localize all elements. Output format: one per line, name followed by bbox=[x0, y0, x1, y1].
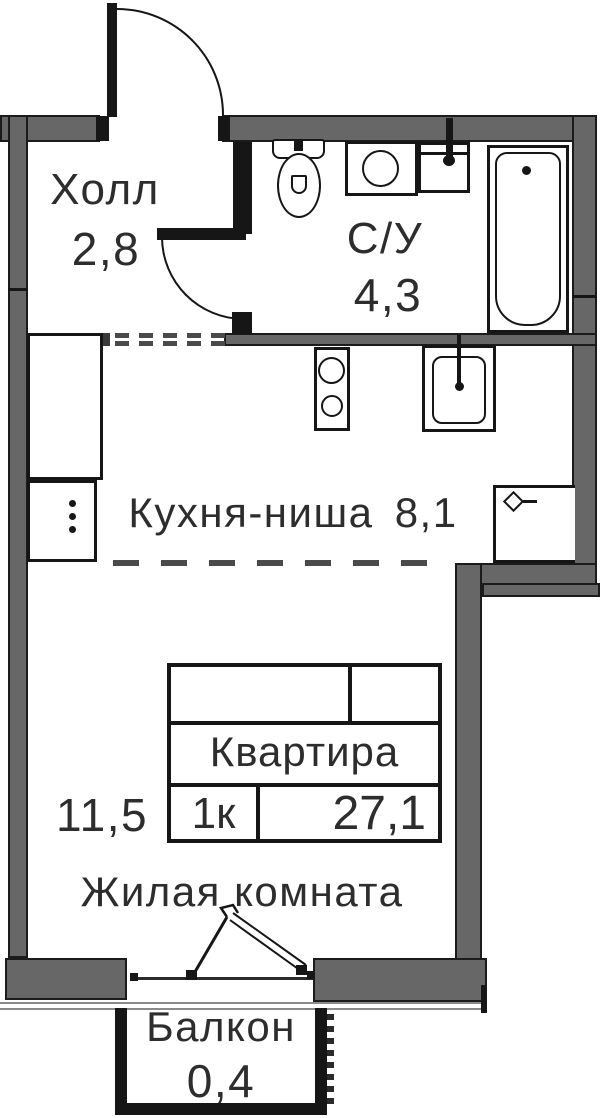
hall-label: Холл bbox=[50, 168, 160, 212]
balcony-hatch bbox=[327, 1014, 334, 1104]
balcony-label: Балкон bbox=[146, 1006, 296, 1048]
window-end-cap bbox=[481, 985, 487, 1013]
hall-kitchen-zone-line-1 bbox=[115, 333, 227, 338]
stove-burner-1 bbox=[318, 357, 345, 384]
apartment-title: Квартира bbox=[171, 731, 438, 773]
kitchen-sink-tap-dot bbox=[455, 382, 464, 391]
living-right-wall bbox=[455, 563, 482, 985]
balcony-wall-right bbox=[315, 1008, 327, 1115]
bathroom-sink-rim bbox=[421, 152, 467, 155]
refrigerator-dot-1 bbox=[69, 500, 76, 507]
living-area: 11,5 bbox=[56, 792, 148, 838]
entrance-door-jamb-left bbox=[96, 116, 109, 141]
stove-burner-2 bbox=[321, 395, 343, 417]
right-wall-joint bbox=[572, 295, 597, 298]
kitchen-living-zone-line bbox=[113, 560, 431, 566]
left-wall bbox=[8, 115, 28, 958]
bathroom-sink-icon bbox=[418, 142, 470, 193]
balcony-wall-left bbox=[115, 1008, 127, 1115]
bathroom-kitchen-wall bbox=[224, 333, 597, 346]
kitchen-sink-tap bbox=[457, 335, 461, 385]
vent-shaft-tail bbox=[523, 500, 537, 503]
balcony-threshold bbox=[133, 977, 313, 980]
info-table-row-line-1 bbox=[171, 721, 438, 725]
kitchen-area: 8,1 bbox=[395, 489, 458, 536]
bathroom-sink-tap bbox=[446, 118, 453, 160]
bathroom-area: 4,3 bbox=[354, 272, 422, 318]
toilet-bowl-inner bbox=[291, 175, 307, 194]
wardrobe-icon bbox=[27, 333, 103, 480]
living-label: Жилая комната bbox=[81, 871, 404, 913]
bathroom-sink-tap-dot bbox=[443, 155, 455, 166]
kitchen-name: Кухня-ниша bbox=[128, 489, 373, 536]
refrigerator-dot-2 bbox=[69, 513, 76, 520]
balcony-area: 0,4 bbox=[187, 1058, 255, 1104]
vent-shaft-box bbox=[493, 485, 575, 563]
bathtub-drain bbox=[522, 166, 531, 175]
entrance-door-leaf bbox=[107, 3, 117, 117]
toilet-flush-button bbox=[294, 139, 303, 151]
hall-area: 2,8 bbox=[72, 226, 140, 272]
top-wall-right bbox=[222, 115, 597, 142]
bathroom-label: С/У bbox=[347, 217, 423, 261]
bottom-wall-right bbox=[313, 958, 487, 1002]
bottom-wall-left bbox=[5, 958, 127, 1000]
hall-bathroom-partition bbox=[233, 142, 252, 234]
left-wall-joint bbox=[8, 288, 28, 291]
se-outer-band bbox=[482, 583, 600, 597]
rooms-count: 1к bbox=[171, 792, 256, 836]
right-wall bbox=[572, 115, 597, 590]
bathtub-inner bbox=[495, 152, 561, 326]
total-area: 27,1 bbox=[260, 790, 432, 838]
entrance-door-swing-arc bbox=[117, 8, 224, 115]
bathroom-door-swing-arc bbox=[161, 237, 244, 320]
entrance-door-jamb-right bbox=[218, 116, 230, 141]
floor-plan: Квартира 1к 27,1 Холл 2,8 С/У 4,3 Кухня-… bbox=[0, 0, 600, 1118]
info-table-col-divider bbox=[348, 667, 352, 723]
kitchen-label: Кухня-ниша 8,1 bbox=[128, 492, 457, 534]
hall-kitchen-zone-line-2 bbox=[115, 341, 227, 346]
refrigerator-dot-3 bbox=[69, 526, 76, 533]
washing-machine-drum bbox=[362, 150, 399, 187]
refrigerator-icon bbox=[27, 480, 97, 562]
